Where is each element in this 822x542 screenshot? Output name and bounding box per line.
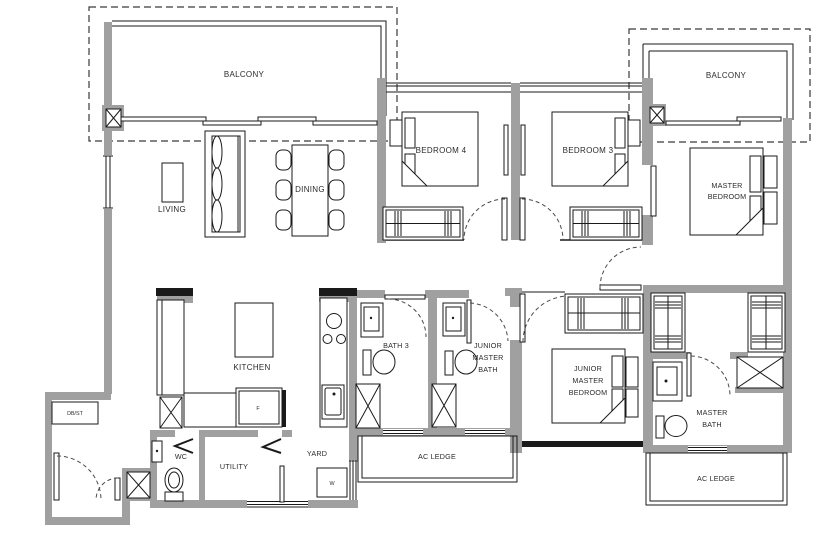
room-label-junior-master-bedroom-3: BEDROOM [569, 388, 608, 397]
room-label-junior-master-bath-1: JUNIOR [474, 341, 502, 350]
floor-plan: BALCONY BALCONY LIVING DINING BEDROOM 4 … [0, 0, 822, 542]
room-label-db-st: DB/ST [67, 411, 84, 417]
tv-console [162, 163, 183, 202]
sofa [205, 131, 245, 237]
room-label-living: LIVING [158, 205, 186, 214]
balcony-parapets [112, 21, 793, 120]
room-label-bedroom4: BEDROOM 4 [416, 146, 467, 155]
room-label-master-bedroom-1: MASTER [711, 181, 742, 190]
junior-master-bed [552, 349, 638, 423]
room-label-balcony-right: BALCONY [706, 71, 747, 80]
junior-bath-vanity-icon [443, 303, 465, 336]
room-label-master-bedroom-2: BEDROOM [708, 192, 747, 201]
room-label-balcony-left: BALCONY [224, 70, 265, 79]
kitchen-sink-icon [322, 385, 344, 419]
room-label-bedroom3: BEDROOM 3 [563, 146, 614, 155]
room-label-wc: WC [175, 452, 187, 461]
junior-master-wardrobe [565, 294, 643, 333]
room-label-dining: DINING [295, 185, 325, 194]
wc-sink-icon [152, 441, 162, 462]
master-bath-toilet-icon [656, 416, 687, 439]
room-label-master-bath-2: BATH [702, 420, 721, 429]
room-label-kitchen: KITCHEN [233, 363, 270, 372]
room-label-ac-ledge-left: AC LEDGE [418, 452, 456, 461]
room-label-ac-ledge-right: AC LEDGE [697, 474, 735, 483]
wc-toilet-icon [165, 468, 183, 501]
bifold-door-icon [175, 439, 281, 453]
room-label-junior-master-bedroom-1: JUNIOR [574, 364, 602, 373]
floor-plan-page: BALCONY BALCONY LIVING DINING BEDROOM 4 … [0, 0, 822, 542]
room-label-junior-master-bedroom-2: MASTER [572, 376, 603, 385]
room-label-junior-master-bath-2: MASTER [472, 353, 503, 362]
room-label-bath3: BATH 3 [383, 341, 409, 350]
bath3-vanity-icon [361, 303, 383, 337]
living-window [102, 155, 114, 209]
interior-thin-walls [386, 240, 642, 292]
room-label-utility: UTILITY [220, 462, 248, 471]
master-bath-vanity-icon [653, 362, 682, 401]
bath3-toilet-icon [363, 350, 395, 375]
room-label-master-bath-1: MASTER [696, 408, 727, 417]
master-wardrobe-left [651, 293, 685, 352]
bedroom4-wardrobe [383, 207, 463, 240]
bedroom3-wardrobe [570, 207, 642, 240]
master-wardrobe-right [748, 293, 785, 352]
room-label-yard: YARD [307, 449, 327, 458]
room-label-junior-master-bath-3: BATH [478, 365, 497, 374]
